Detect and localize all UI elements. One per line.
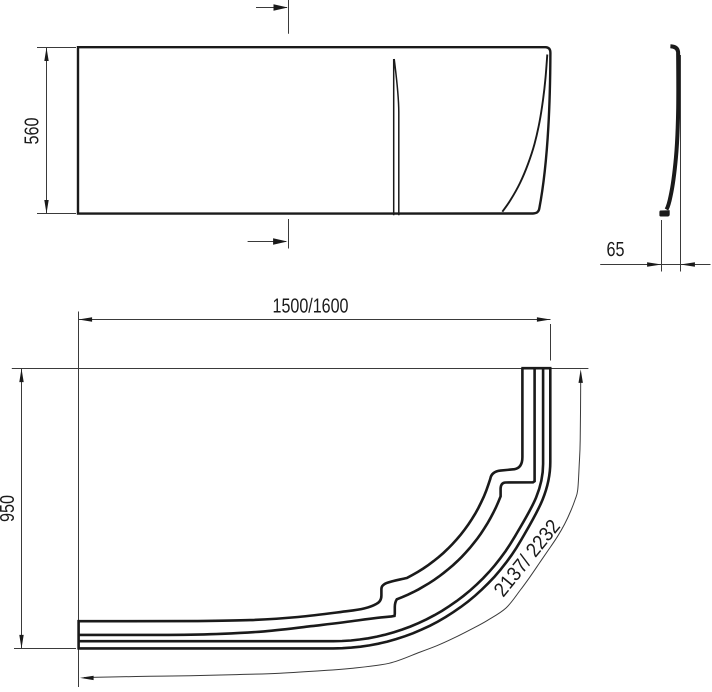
svg-text:65: 65	[606, 239, 624, 261]
svg-text:950: 950	[0, 495, 19, 522]
svg-text:1500/1600: 1500/1600	[272, 295, 348, 317]
svg-text:560: 560	[22, 118, 44, 145]
